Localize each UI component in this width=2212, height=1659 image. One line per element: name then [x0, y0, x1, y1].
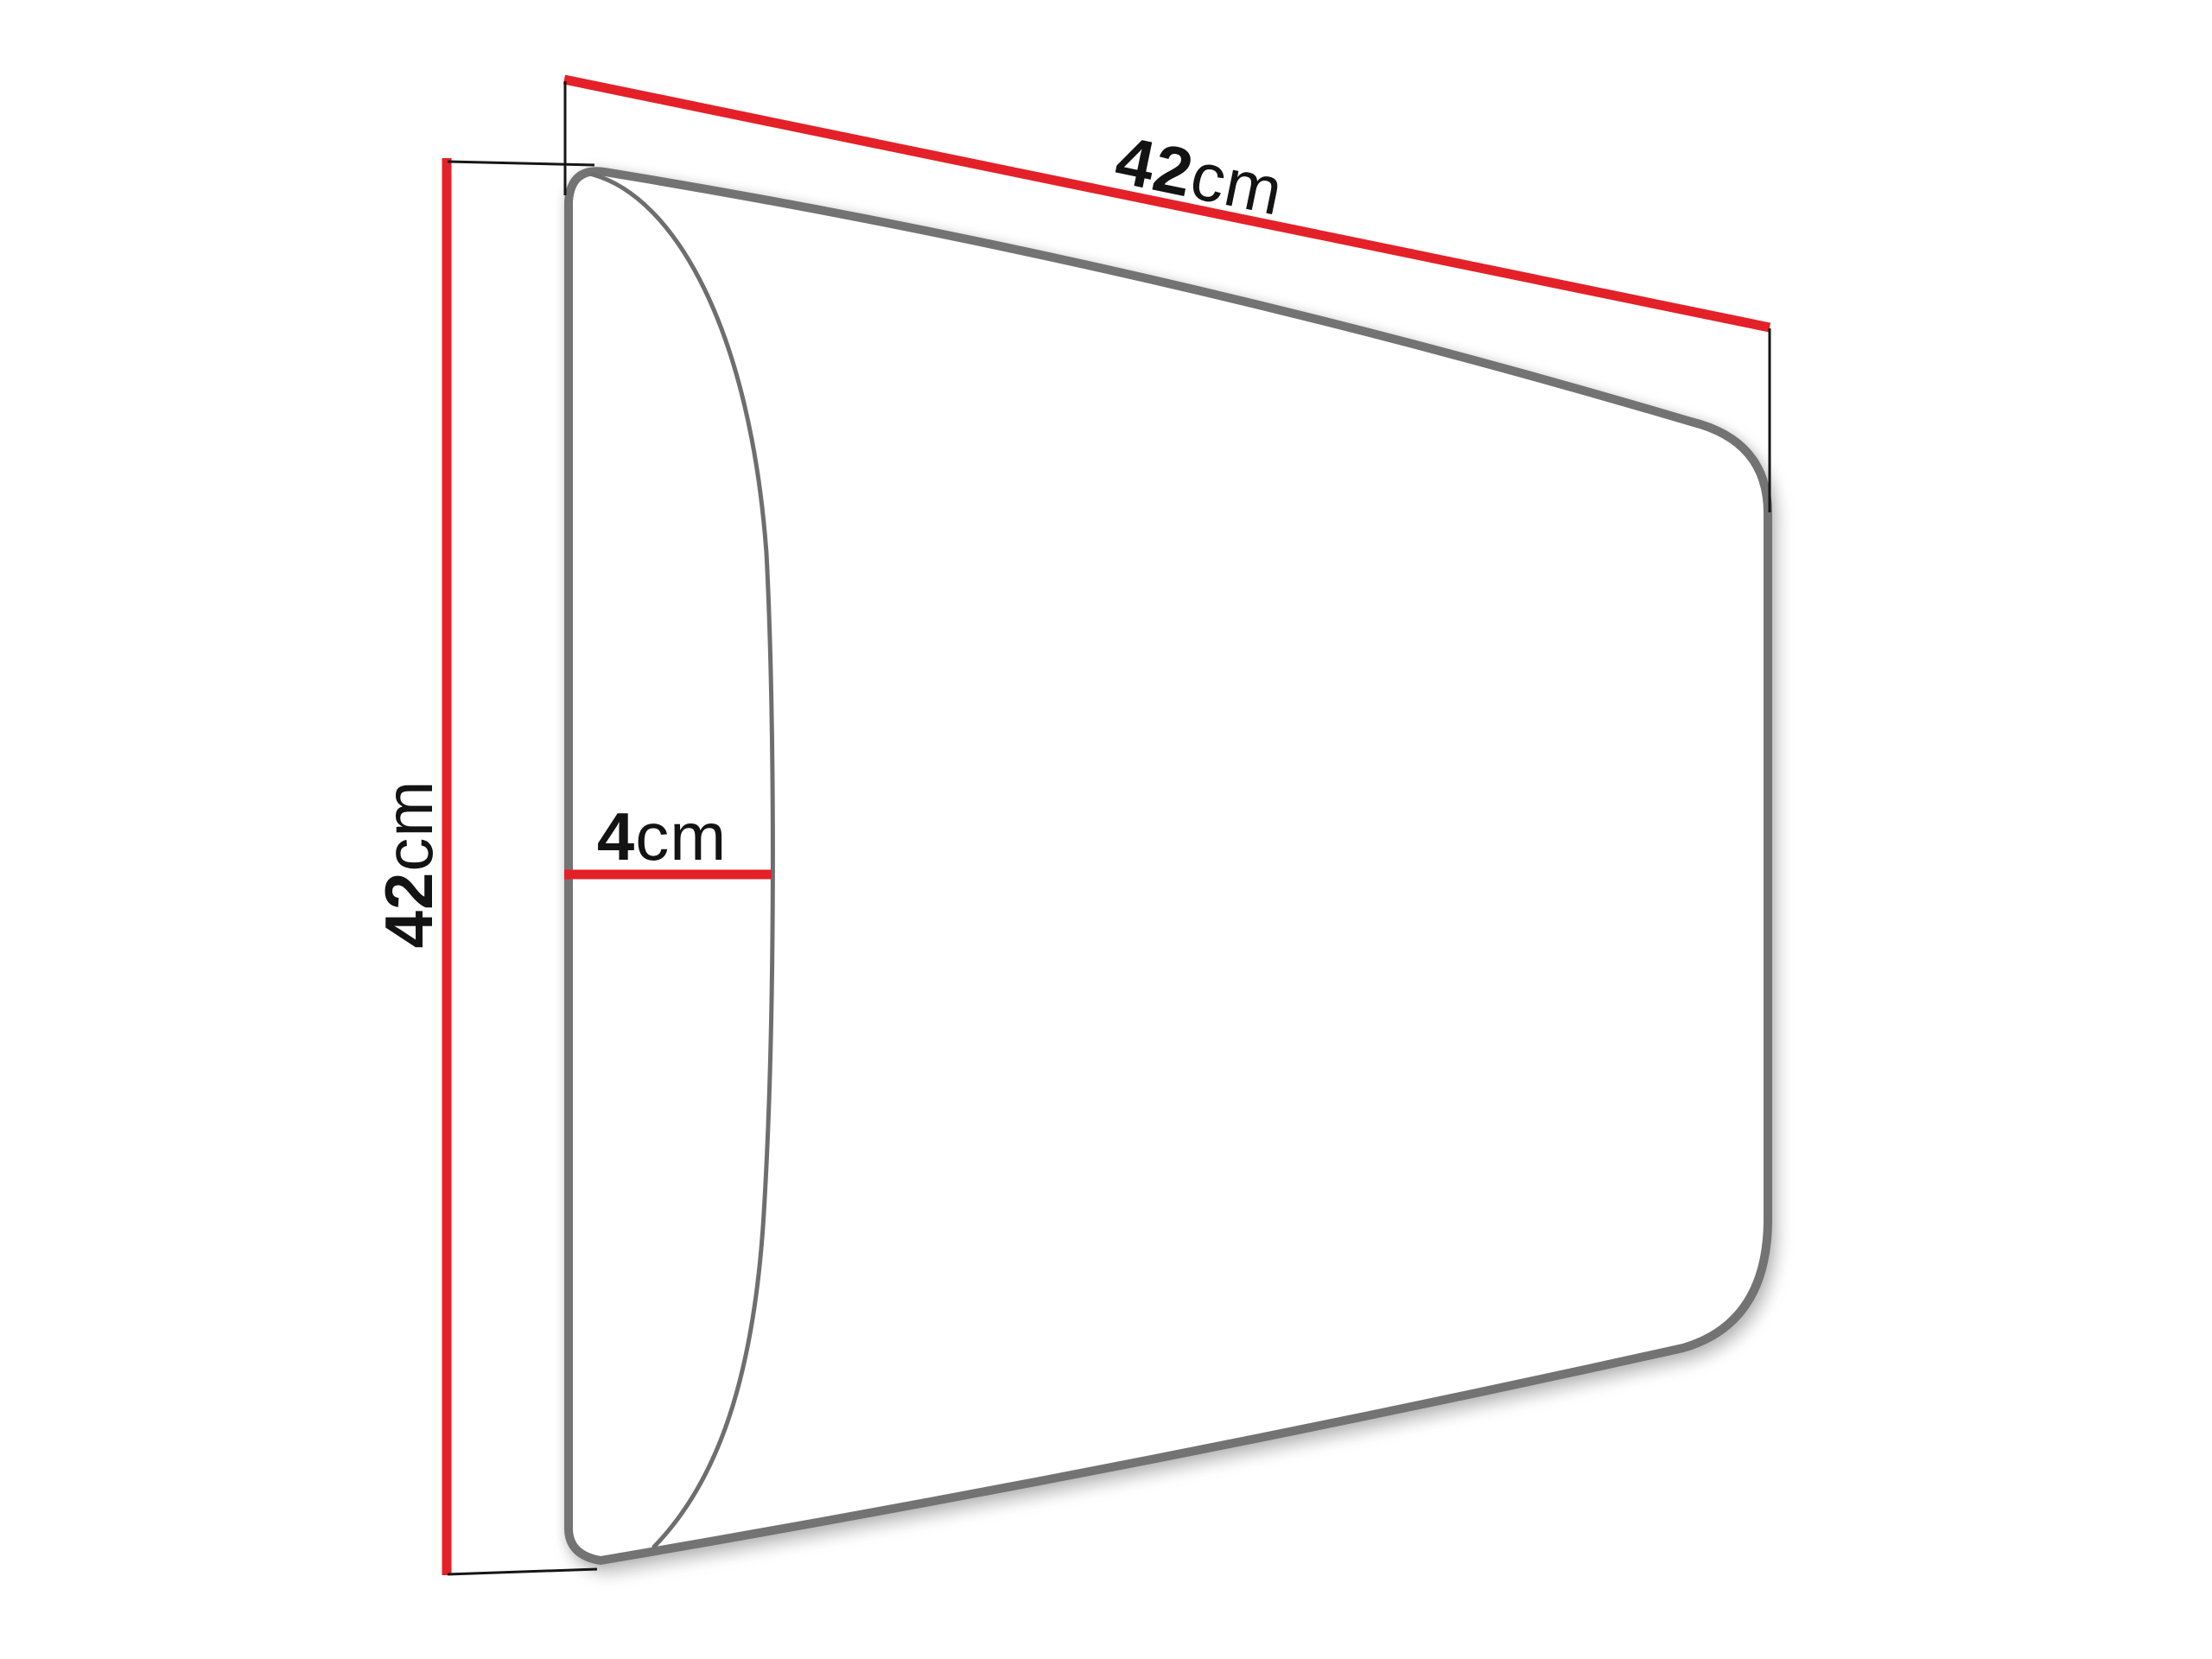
depth-dimension-label: 4cm — [597, 800, 727, 874]
height-unit: cm — [371, 780, 447, 872]
dimension-drawing-canvas: 42cm 42cm 4cm — [0, 0, 2212, 1659]
panel-diagram — [0, 0, 2212, 1659]
extension-line-bottom-left-horizontal — [448, 1569, 597, 1574]
depth-value: 4 — [597, 798, 635, 874]
height-value: 42 — [371, 872, 447, 949]
depth-unit: cm — [635, 798, 727, 874]
extension-line-top-left-horizontal — [448, 162, 594, 165]
height-dimension-label: 42cm — [372, 780, 447, 949]
